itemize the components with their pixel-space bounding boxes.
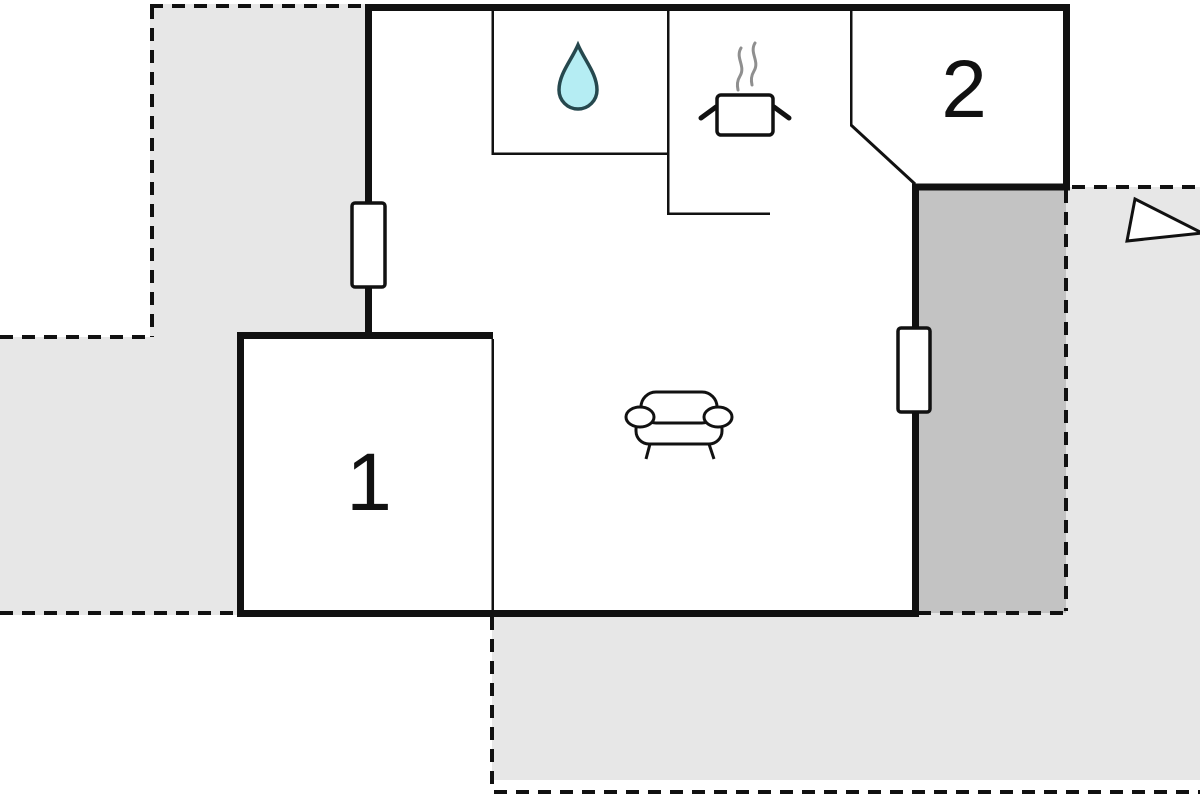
patio-dark-area: [915, 187, 1066, 613]
room2-label: 2: [941, 44, 987, 135]
floor-plan-svg: 1 2: [0, 0, 1200, 800]
sofa-armrest-left: [626, 407, 654, 427]
window-marker-left: [352, 203, 385, 287]
window-marker-right: [898, 328, 930, 412]
pot-body: [717, 95, 773, 135]
sofa-armrest-right: [704, 407, 732, 427]
room1-label: 1: [346, 437, 392, 528]
floor-plan: 1 2: [0, 0, 1200, 800]
